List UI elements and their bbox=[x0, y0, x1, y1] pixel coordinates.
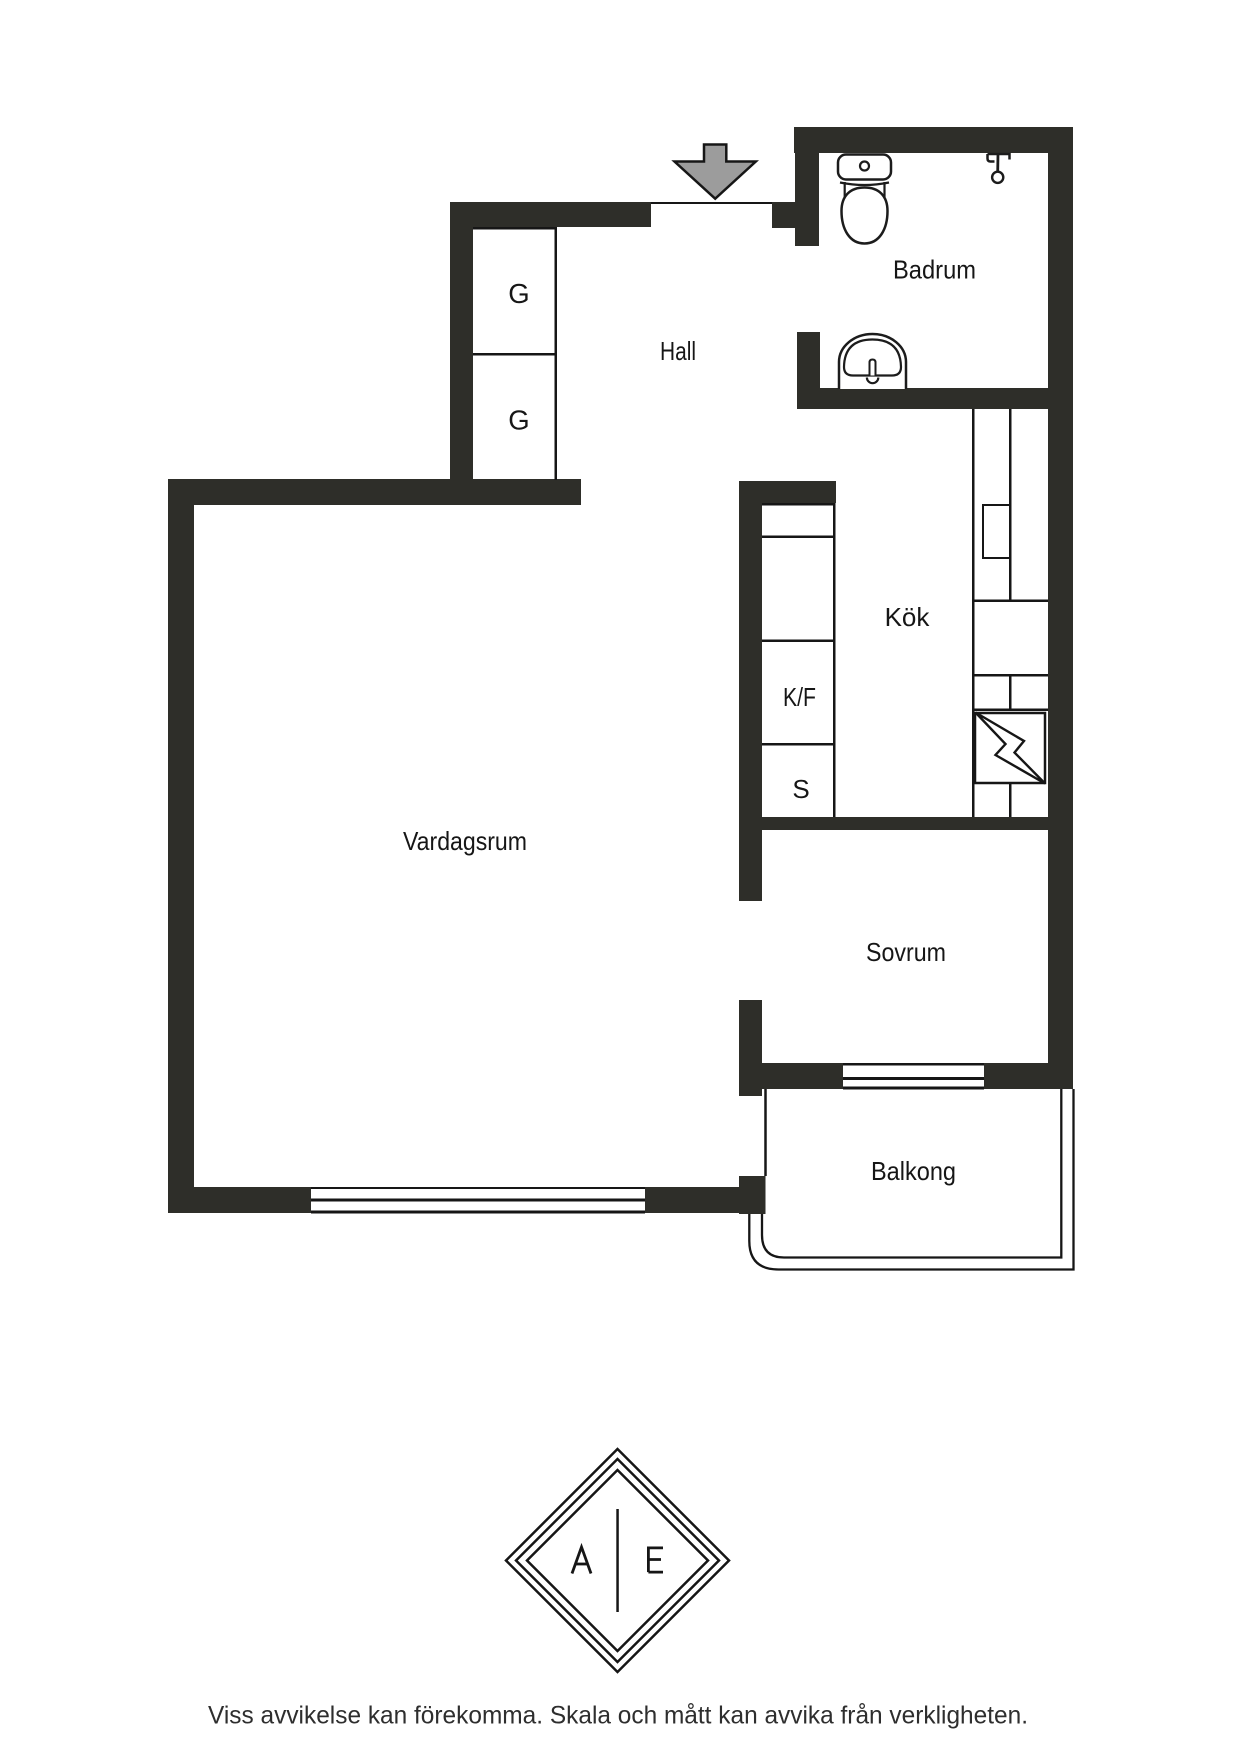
svg-text:S: S bbox=[792, 774, 809, 804]
svg-text:K/F: K/F bbox=[783, 682, 816, 712]
svg-text:Sovrum: Sovrum bbox=[866, 937, 946, 967]
svg-text:Badrum: Badrum bbox=[893, 254, 976, 284]
svg-text:Hall: Hall bbox=[660, 336, 696, 366]
svg-text:G: G bbox=[508, 278, 529, 309]
svg-text:Balkong: Balkong bbox=[871, 1156, 956, 1186]
svg-text:G: G bbox=[508, 405, 529, 436]
svg-text:Kök: Kök bbox=[885, 602, 931, 632]
svg-text:Viss avvikelse kan förekomma.: Viss avvikelse kan förekomma. Skala och … bbox=[208, 1703, 1028, 1730]
svg-text:Vardagsrum: Vardagsrum bbox=[403, 826, 527, 856]
